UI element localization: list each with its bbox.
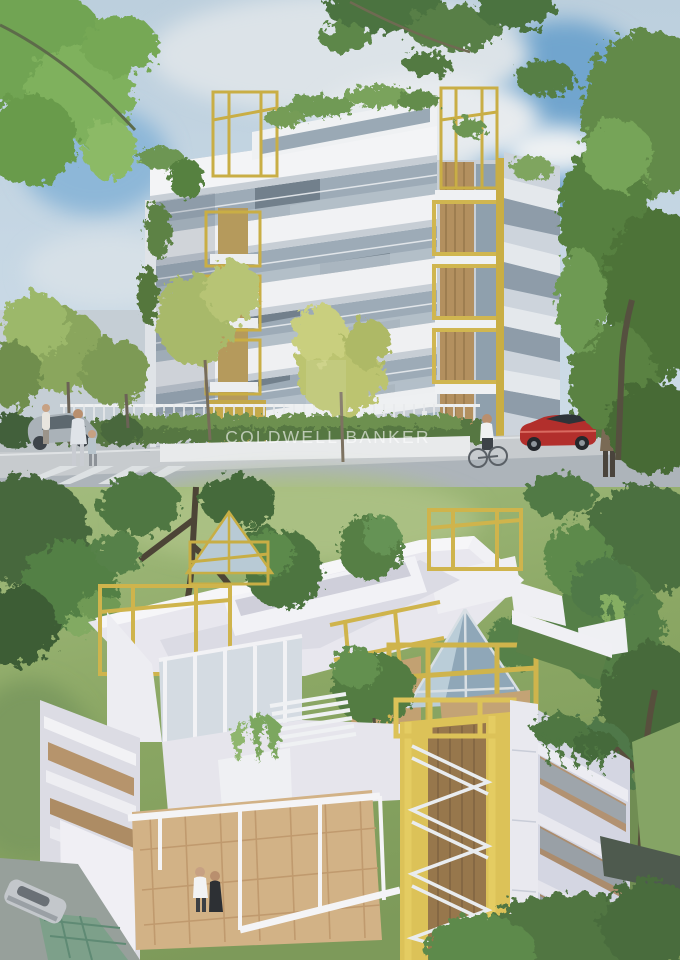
svg-text:COLDWELL BANKER: COLDWELL BANKER: [225, 427, 430, 447]
